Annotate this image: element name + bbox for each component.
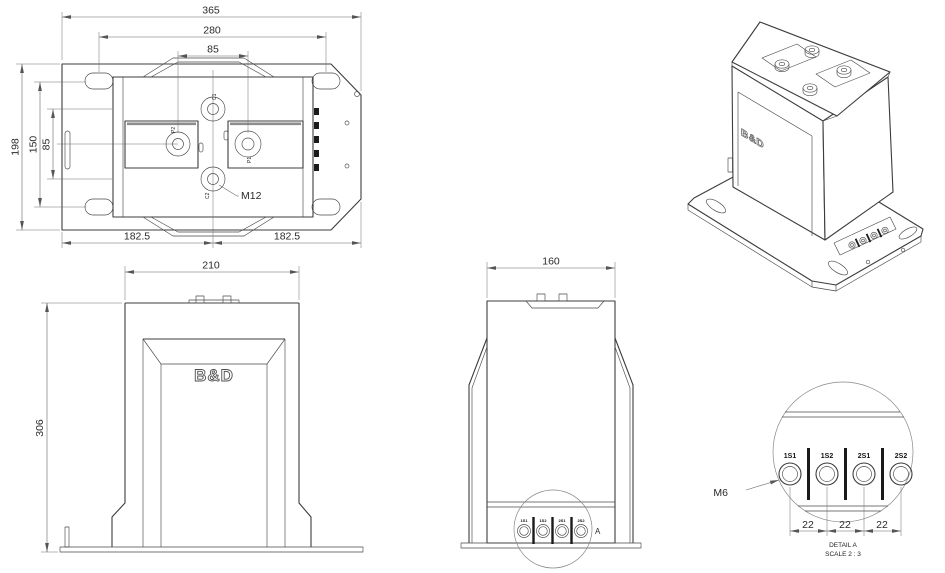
detail-caption: DETAIL A SCALE 2 : 3 bbox=[825, 542, 861, 558]
terminal-label-p2: P2 bbox=[171, 127, 177, 133]
stud-p1 bbox=[235, 131, 261, 157]
iso-body: B&D bbox=[728, 22, 893, 240]
centerlines bbox=[57, 70, 213, 248]
terminal-1s2-label: 1S2 bbox=[539, 518, 547, 523]
terminal-2s2-label: 2S2 bbox=[577, 518, 585, 523]
detail-separators bbox=[807, 448, 884, 500]
front-base bbox=[60, 527, 363, 552]
detail-label-2s1: 2S1 bbox=[858, 453, 871, 460]
detail-terminal-2s2: 2S2 bbox=[890, 453, 912, 485]
detail-caption-title: DETAIL A bbox=[829, 542, 857, 549]
terminal-1s1: 1S1 bbox=[518, 518, 531, 538]
side-dimensions: 160 bbox=[487, 256, 615, 299]
dim-front-height: 306 bbox=[34, 419, 46, 437]
terminal-label-c1: C1 bbox=[212, 93, 218, 100]
terminal-2s2: 2S2 bbox=[575, 518, 588, 538]
terminal-2s1: 2S1 bbox=[556, 518, 569, 538]
dim-pitch-1: 22 bbox=[802, 519, 814, 531]
detail-caption-scale: SCALE 2 : 3 bbox=[825, 551, 861, 558]
m12-callout: M12 bbox=[219, 185, 262, 202]
dim-pitch-3: 22 bbox=[876, 519, 888, 531]
detail-a-marker: A bbox=[595, 527, 601, 536]
dim-right-half: 182.5 bbox=[274, 231, 300, 243]
m12-label: M12 bbox=[241, 190, 262, 202]
detail-label-1s1: 1S1 bbox=[784, 453, 797, 460]
technical-drawing-sheet: C1 P2 P1 C2 M12 365 280 85 198 bbox=[0, 0, 945, 573]
dim-left-half: 182.5 bbox=[124, 231, 150, 243]
plate-holes bbox=[345, 92, 360, 169]
iso-view: B&D bbox=[688, 22, 923, 291]
primary-windows bbox=[125, 121, 303, 168]
dim-side-width: 160 bbox=[542, 256, 560, 268]
front-logo: B&D bbox=[194, 366, 234, 385]
terminal-strip-edge bbox=[314, 108, 319, 171]
dim-primary-pitch: 85 bbox=[207, 44, 219, 56]
detail-a-view: 1S1 1S2 2S1 2S2 M6 22 22 22 bbox=[713, 382, 913, 558]
top-view: C1 P2 P1 C2 M12 365 280 85 198 bbox=[10, 5, 362, 249]
drawing-svg: C1 P2 P1 C2 M12 365 280 85 198 bbox=[0, 0, 945, 573]
m6-label: M6 bbox=[713, 487, 728, 499]
terminal-label-p1: P1 bbox=[247, 157, 253, 163]
detail-terminal-1s1: 1S1 bbox=[779, 453, 801, 485]
dim-front-width: 210 bbox=[202, 260, 220, 272]
detail-label-1s2: 1S2 bbox=[821, 453, 834, 460]
detail-label-2s2: 2S2 bbox=[895, 453, 908, 460]
side-body bbox=[461, 294, 641, 548]
dim-pitch-2: 22 bbox=[839, 519, 851, 531]
front-view: B&D 210 306 bbox=[34, 260, 363, 553]
body-chamfers bbox=[143, 58, 274, 236]
dim-mount-depth: 150 bbox=[28, 136, 40, 154]
m6-callout: M6 bbox=[713, 480, 779, 499]
dim-mount-width: 280 bbox=[203, 25, 221, 37]
detail-terminal-1s2: 1S2 bbox=[816, 453, 838, 485]
side-view: 1S1 1S2 2S1 2S2 A 160 bbox=[461, 256, 641, 569]
terminal-1s2: 1S2 bbox=[537, 518, 550, 538]
front-body: B&D bbox=[112, 296, 311, 547]
detail-panel-lines bbox=[782, 412, 904, 511]
side-terminals: 1S1 1S2 2S1 2S2 bbox=[518, 517, 588, 544]
terminal-2s1-label: 2S1 bbox=[558, 518, 566, 523]
dim-overall-width: 365 bbox=[202, 5, 220, 17]
terminal-label-c2: C2 bbox=[205, 192, 211, 199]
dim-stud-pitch: 85 bbox=[41, 139, 53, 151]
terminal-1s1-label: 1S1 bbox=[520, 518, 528, 523]
detail-a-circle bbox=[773, 382, 913, 522]
detail-terminal-2s1: 2S1 bbox=[853, 453, 875, 485]
dim-depth-overall: 198 bbox=[10, 138, 22, 156]
